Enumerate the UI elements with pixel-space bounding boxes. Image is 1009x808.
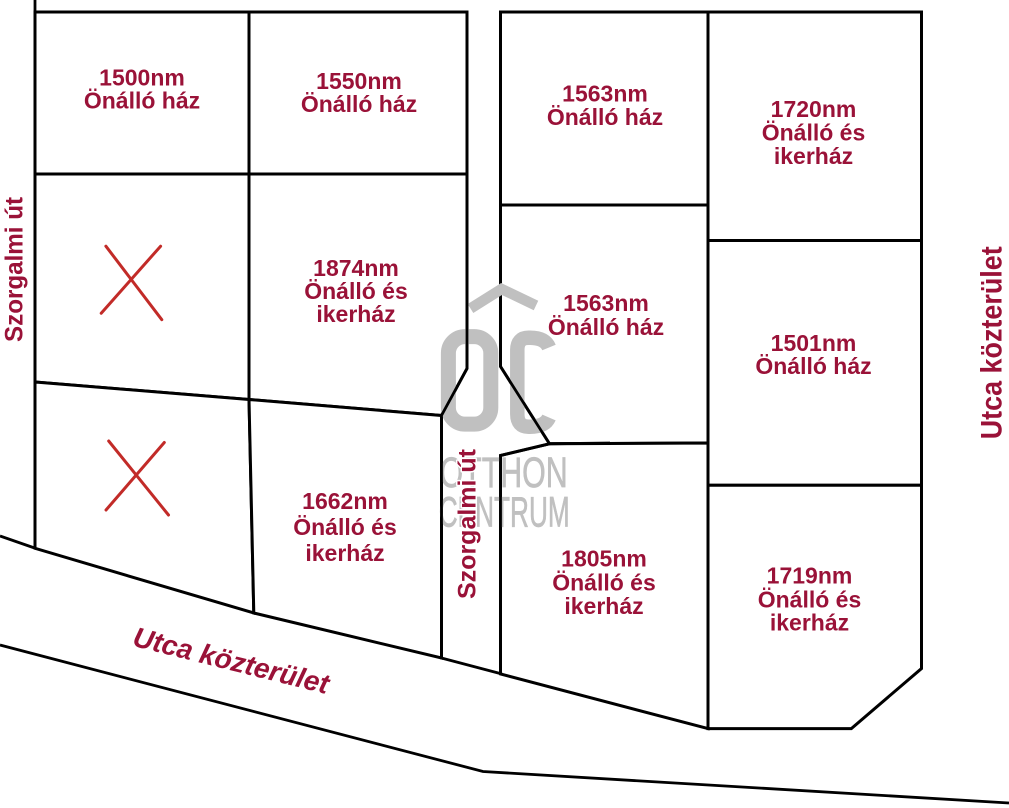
svg-text:1874nmÖnálló ésikerház: 1874nmÖnálló ésikerház	[304, 255, 408, 327]
svg-text:1500nmÖnálló ház: 1500nmÖnálló ház	[84, 64, 200, 113]
svg-text:1719nmÖnálló ésikerház: 1719nmÖnálló ésikerház	[758, 563, 862, 636]
svg-text:1563nmÖnálló ház: 1563nmÖnálló ház	[547, 81, 663, 131]
svg-text:1662nmÖnálló ésikerház: 1662nmÖnálló ésikerház	[293, 488, 397, 566]
svg-text:1805nmÖnálló ésikerház: 1805nmÖnálló ésikerház	[552, 546, 656, 620]
svg-text:1501nmÖnálló ház: 1501nmÖnálló ház	[755, 330, 871, 379]
svg-text:1563nmÖnálló ház: 1563nmÖnálló ház	[548, 290, 664, 340]
svg-text:Szorgalmi út: Szorgalmi út	[454, 448, 482, 599]
svg-text:Utca közterület: Utca közterület	[976, 246, 1009, 439]
svg-text:1720nmÖnálló ésikerház: 1720nmÖnálló ésikerház	[762, 96, 866, 169]
svg-text:1550nmÖnálló ház: 1550nmÖnálló ház	[301, 68, 417, 117]
svg-text:Szorgalmi út: Szorgalmi út	[1, 196, 29, 342]
